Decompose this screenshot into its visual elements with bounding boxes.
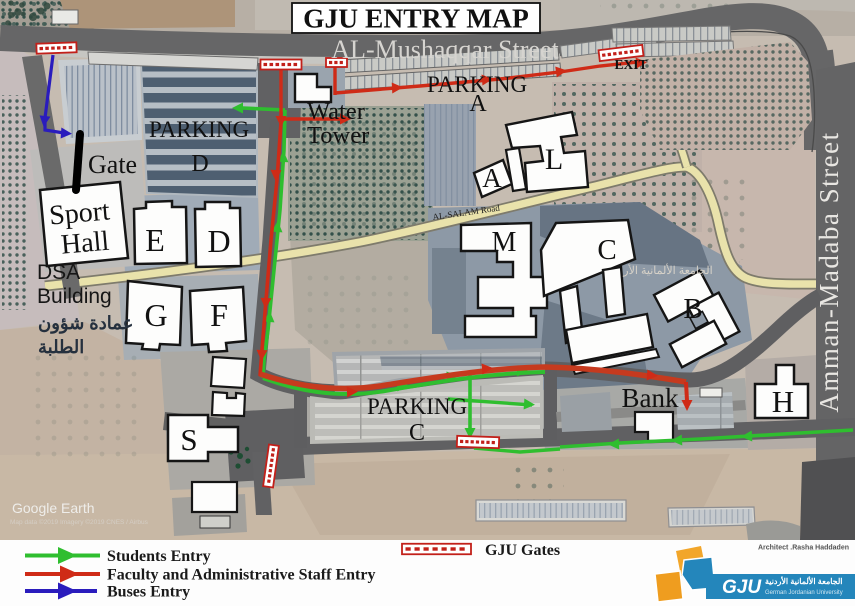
svg-text:Amman-Madaba Street: Amman-Madaba Street bbox=[814, 131, 844, 412]
svg-text:E: E bbox=[145, 222, 165, 258]
svg-text:M: M bbox=[492, 227, 517, 258]
svg-text:Architect .Rasha Haddaden: Architect .Rasha Haddaden bbox=[758, 545, 849, 552]
svg-text:PARKING: PARKING bbox=[367, 394, 467, 419]
svg-text:C: C bbox=[597, 234, 616, 266]
svg-text:G: G bbox=[144, 297, 167, 333]
svg-text:GJU Gates: GJU Gates bbox=[485, 542, 560, 559]
svg-text:B: B bbox=[683, 293, 702, 325]
svg-text:Gate: Gate bbox=[88, 150, 137, 179]
svg-text:Google Earth: Google Earth bbox=[12, 500, 95, 516]
svg-text:H: H bbox=[772, 384, 794, 419]
svg-text:الجامعة الألمانية الأر: الجامعة الألمانية الأر bbox=[622, 263, 712, 277]
svg-text:EXIT: EXIT bbox=[614, 57, 647, 72]
svg-text:D: D bbox=[191, 151, 208, 177]
svg-text:Hall: Hall bbox=[60, 226, 111, 261]
svg-text:L: L bbox=[545, 143, 563, 176]
svg-text:AL-Mushaqqar Street: AL-Mushaqqar Street bbox=[331, 35, 559, 64]
svg-text:Bank: Bank bbox=[622, 383, 679, 413]
svg-text:GJU ENTRY MAP: GJU ENTRY MAP bbox=[303, 3, 529, 34]
svg-text:S: S bbox=[180, 422, 197, 457]
svg-text:A: A bbox=[469, 91, 487, 117]
svg-text:C: C bbox=[409, 420, 425, 446]
svg-text:DSA: DSA bbox=[37, 261, 80, 284]
svg-text:GJU: GJU bbox=[722, 577, 762, 598]
svg-text:الجامعة الألمانية الأردنية: الجامعة الألمانية الأردنية bbox=[765, 575, 843, 587]
svg-text:F: F bbox=[210, 297, 228, 333]
svg-text:A: A bbox=[482, 163, 502, 193]
svg-text:PARKING: PARKING bbox=[149, 117, 249, 142]
svg-text:German Jordanian University: German Jordanian University bbox=[765, 590, 843, 596]
svg-text:D: D bbox=[207, 223, 230, 259]
svg-text:Faculty and Administrative Sta: Faculty and Administrative Staff Entry bbox=[107, 567, 375, 584]
svg-text:الطلبة: الطلبة bbox=[38, 337, 84, 357]
svg-text:Students Entry: Students Entry bbox=[107, 548, 211, 565]
svg-text:عمادة شؤون: عمادة شؤون bbox=[38, 313, 133, 334]
svg-text:Tower: Tower bbox=[307, 122, 369, 149]
svg-text:Map data ©2019 Imagery ©2019 C: Map data ©2019 Imagery ©2019 CNES / Airb… bbox=[10, 518, 149, 526]
svg-text:Building: Building bbox=[37, 285, 112, 308]
svg-text:Buses Entry: Buses Entry bbox=[107, 584, 190, 601]
svg-text:Water: Water bbox=[307, 98, 365, 125]
